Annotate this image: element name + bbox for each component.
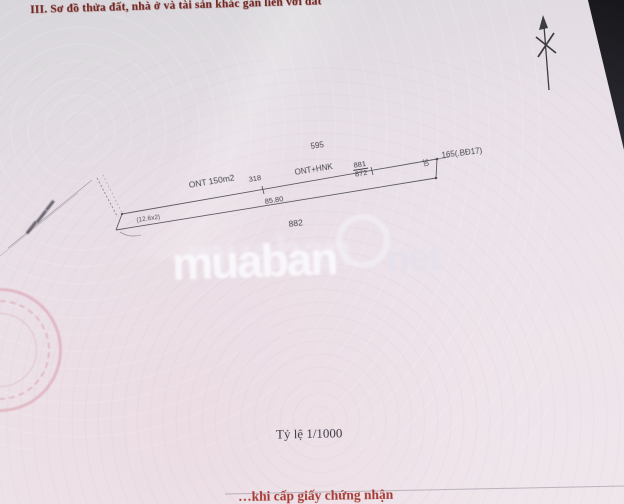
parcel-left-edge (116, 214, 122, 230)
corner-point (435, 177, 438, 180)
tick-mark (262, 186, 264, 194)
corner-point (121, 213, 123, 215)
photographed-land-certificate: III. Sơ đồ thửa đất, nhà ở và tài sản kh… (0, 0, 624, 504)
segment-length-label: 318 (248, 173, 262, 184)
parcel-number-area-fraction: 881 872 (352, 160, 369, 179)
bottom-note: …khi cấp giấy chứng nhận (238, 484, 568, 504)
parcel-right-edge (436, 159, 437, 178)
left-tip-curve (120, 232, 141, 236)
tick-mark (371, 167, 373, 175)
scale-label: Tỷ lệ 1/1000 (276, 425, 343, 442)
parcel-top-edge (122, 159, 437, 214)
adjacent-parcel-label: 882 (288, 217, 303, 229)
total-length-label: 595 (310, 140, 324, 151)
road-line (8, 180, 92, 248)
north-arrow-icon (536, 15, 556, 90)
corner-point (436, 158, 439, 161)
road-line-2 (0, 193, 78, 256)
